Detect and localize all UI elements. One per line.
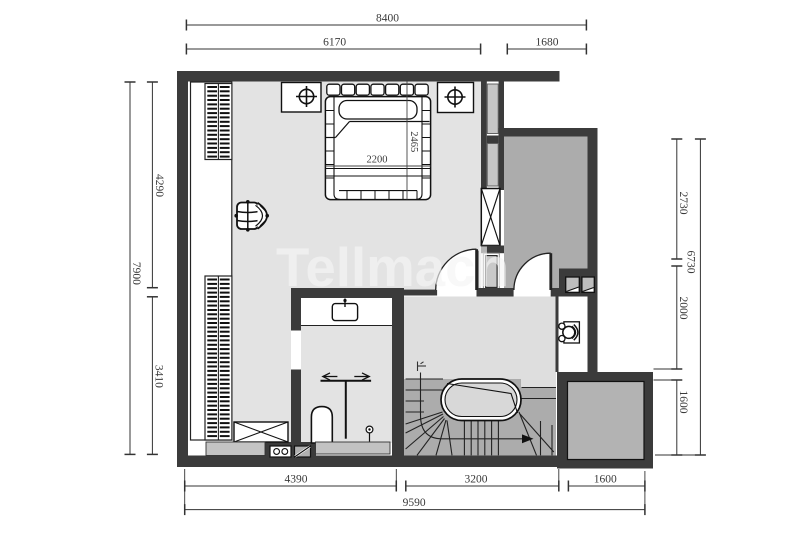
svg-text:4290: 4290 bbox=[153, 174, 165, 197]
svg-text:6730: 6730 bbox=[685, 251, 697, 274]
svg-text:2465: 2465 bbox=[408, 131, 419, 152]
svg-text:2200: 2200 bbox=[367, 155, 388, 166]
svg-text:1600: 1600 bbox=[594, 474, 617, 486]
svg-text:3410: 3410 bbox=[152, 365, 164, 388]
svg-text:3200: 3200 bbox=[465, 474, 488, 486]
svg-text:2730: 2730 bbox=[677, 192, 689, 215]
svg-text:6170: 6170 bbox=[323, 37, 346, 49]
svg-text:4390: 4390 bbox=[285, 474, 308, 486]
svg-text:Tellmach: Tellmach bbox=[276, 236, 509, 298]
svg-text:9590: 9590 bbox=[403, 497, 426, 509]
svg-text:2000: 2000 bbox=[677, 297, 689, 320]
svg-text:7900: 7900 bbox=[130, 262, 142, 285]
svg-text:1600: 1600 bbox=[677, 391, 689, 414]
svg-text:1680: 1680 bbox=[536, 37, 559, 49]
svg-text:8400: 8400 bbox=[376, 13, 399, 25]
